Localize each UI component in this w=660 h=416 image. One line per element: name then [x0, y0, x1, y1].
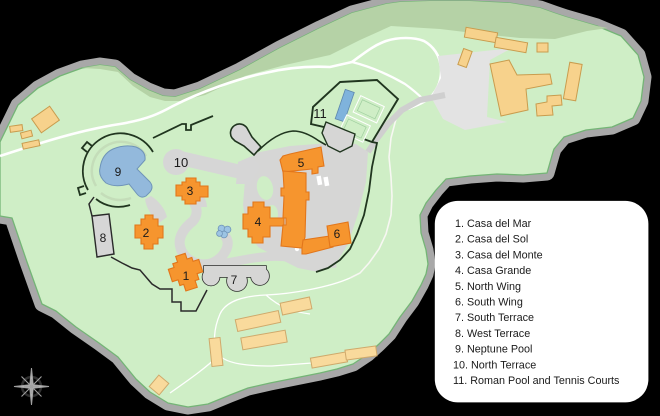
svg-text:2. Casa del Sol: 2. Casa del Sol	[455, 234, 528, 246]
svg-text:8. West Terrace: 8. West Terrace	[455, 328, 530, 340]
svg-text:11: 11	[313, 106, 327, 121]
svg-text:1: 1	[183, 269, 190, 283]
svg-text:2: 2	[143, 226, 150, 240]
svg-text:10: 10	[174, 155, 188, 170]
svg-text:1. Casa del Mar: 1. Casa del Mar	[455, 218, 532, 230]
svg-text:9: 9	[115, 165, 122, 179]
svg-text:3: 3	[187, 184, 194, 198]
svg-text:3. Casa del Monte: 3. Casa del Monte	[455, 249, 543, 261]
svg-text:7. South Terrace: 7. South Terrace	[455, 312, 534, 324]
svg-text:10. North Terrace: 10. North Terrace	[453, 359, 536, 371]
svg-text:7: 7	[231, 273, 238, 287]
svg-text:4: 4	[255, 215, 262, 229]
svg-text:11. Roman Pool and Tennis Cour: 11. Roman Pool and Tennis Courts	[453, 375, 620, 387]
svg-text:8: 8	[100, 231, 107, 245]
svg-text:6: 6	[334, 227, 341, 241]
svg-text:4. Casa Grande: 4. Casa Grande	[455, 265, 531, 277]
svg-text:6. South Wing: 6. South Wing	[455, 297, 523, 309]
svg-text:9. Neptune Pool: 9. Neptune Pool	[455, 344, 532, 356]
svg-text:5. North Wing: 5. North Wing	[455, 281, 521, 293]
svg-text:5: 5	[298, 156, 305, 170]
